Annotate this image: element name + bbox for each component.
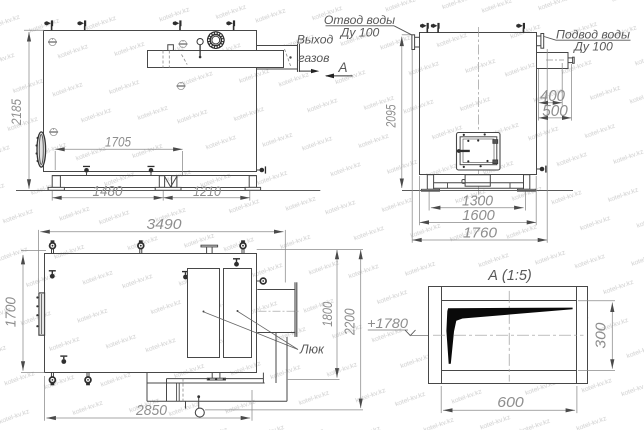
svg-text:1705: 1705 [105,133,131,149]
svg-text:600: 600 [497,394,524,411]
svg-text:А: А [337,60,347,75]
svg-text:Люк: Люк [299,343,325,357]
svg-text:+1780: +1780 [367,315,408,331]
svg-text:1800: 1800 [319,302,335,327]
svg-text:3490: 3490 [147,216,183,233]
svg-text:1210: 1210 [193,183,221,199]
svg-text:1700: 1700 [3,297,20,328]
svg-text:А (1:5): А (1:5) [487,268,532,284]
svg-text:Выход: Выход [297,33,334,47]
svg-text:газов: газов [298,51,329,65]
svg-text:Ду 100: Ду 100 [339,26,380,40]
svg-text:2095: 2095 [383,104,399,128]
svg-text:300: 300 [593,322,610,349]
svg-text:2850: 2850 [135,402,168,419]
svg-text:Ду 100: Ду 100 [572,39,613,53]
svg-text:1600: 1600 [462,207,495,224]
svg-text:1760: 1760 [463,225,498,242]
svg-text:500: 500 [542,103,568,120]
svg-text:2185: 2185 [8,99,24,126]
svg-text:2200: 2200 [343,309,359,336]
svg-text:1480: 1480 [93,184,123,200]
